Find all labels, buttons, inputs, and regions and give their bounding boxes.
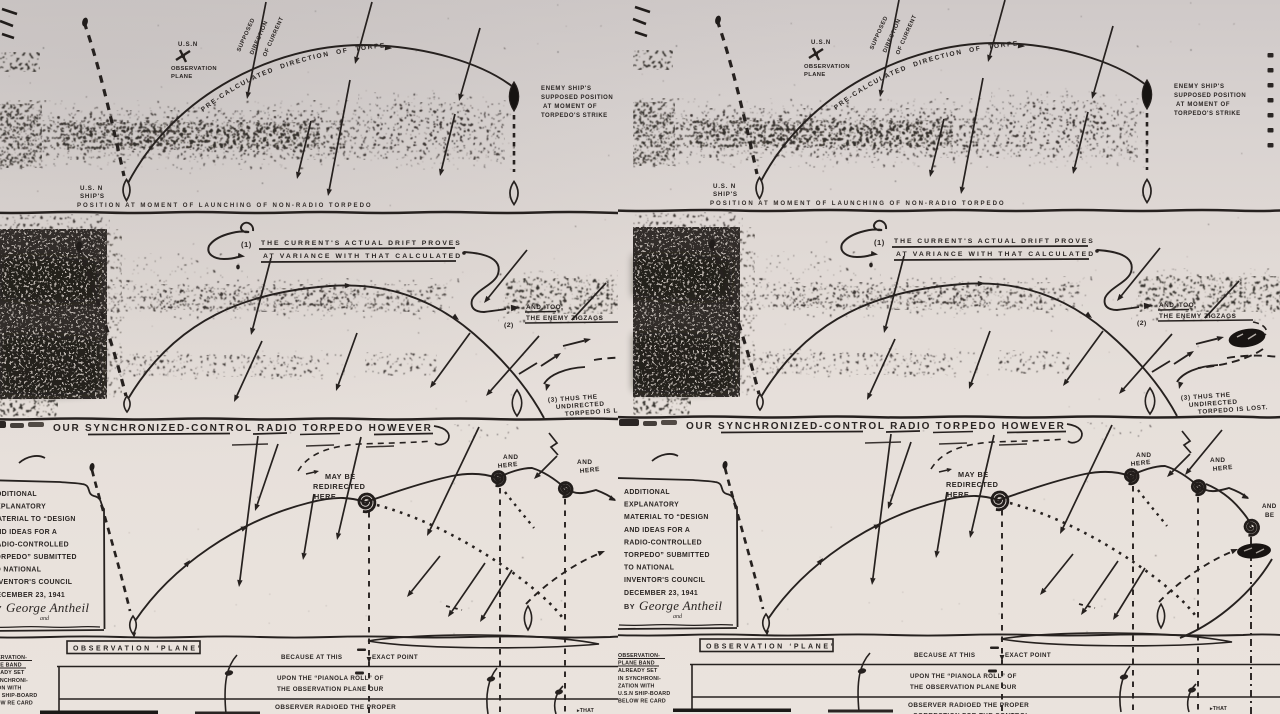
svg-text:AND: AND [1262, 503, 1277, 510]
svg-text:BE: BE [1265, 512, 1274, 519]
